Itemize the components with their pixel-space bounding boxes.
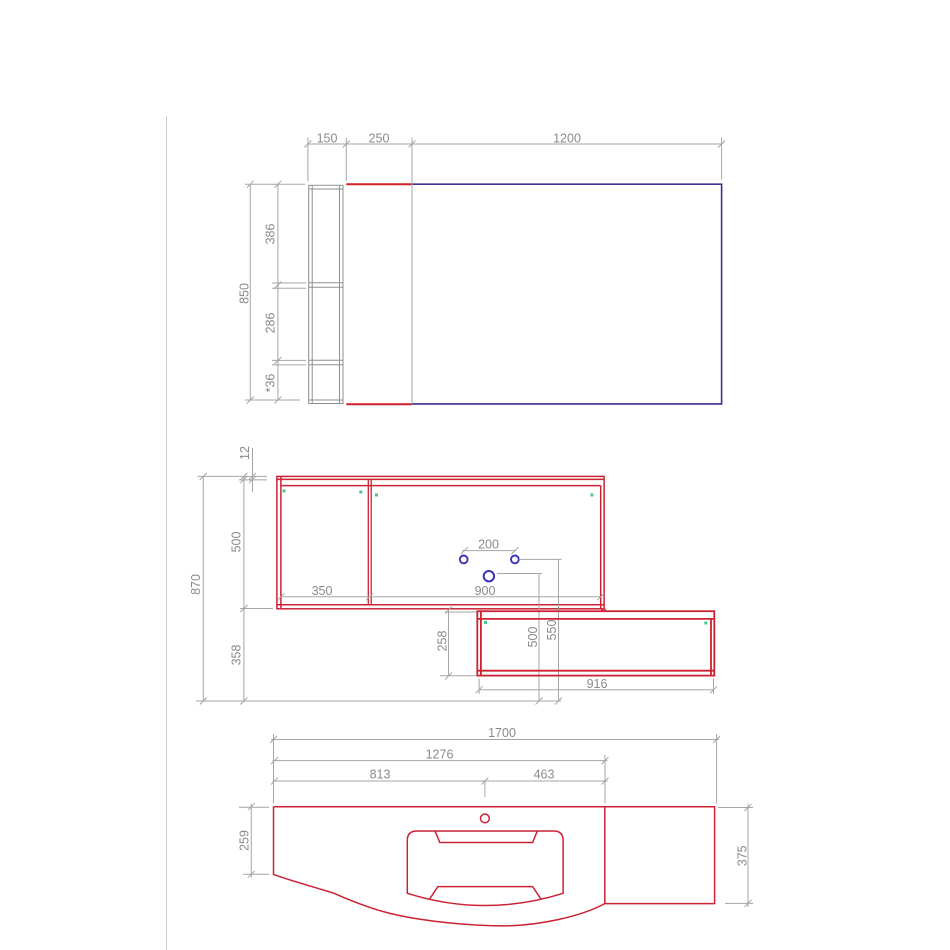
svg-text:358: 358 bbox=[230, 645, 244, 666]
svg-text:1700: 1700 bbox=[488, 726, 516, 740]
svg-text:1200: 1200 bbox=[553, 132, 581, 146]
svg-text:463: 463 bbox=[534, 768, 555, 782]
svg-text:12: 12 bbox=[238, 446, 252, 460]
svg-text:*36: *36 bbox=[264, 374, 278, 393]
svg-text:900: 900 bbox=[475, 584, 496, 598]
svg-text:813: 813 bbox=[370, 768, 391, 782]
svg-text:286: 286 bbox=[264, 313, 278, 334]
svg-text:500: 500 bbox=[230, 532, 244, 553]
svg-text:916: 916 bbox=[587, 677, 608, 691]
svg-text:350: 350 bbox=[312, 584, 333, 598]
svg-text:386: 386 bbox=[264, 224, 278, 245]
svg-text:259: 259 bbox=[238, 830, 252, 851]
svg-text:500: 500 bbox=[526, 627, 540, 648]
svg-text:200: 200 bbox=[478, 538, 499, 552]
svg-text:150: 150 bbox=[317, 132, 338, 146]
svg-text:375: 375 bbox=[735, 845, 749, 866]
svg-text:870: 870 bbox=[189, 574, 203, 595]
svg-text:1276: 1276 bbox=[426, 747, 454, 761]
svg-text:850: 850 bbox=[238, 283, 252, 304]
svg-text:250: 250 bbox=[369, 132, 390, 146]
svg-text:258: 258 bbox=[435, 631, 449, 652]
svg-text:550: 550 bbox=[545, 620, 559, 641]
